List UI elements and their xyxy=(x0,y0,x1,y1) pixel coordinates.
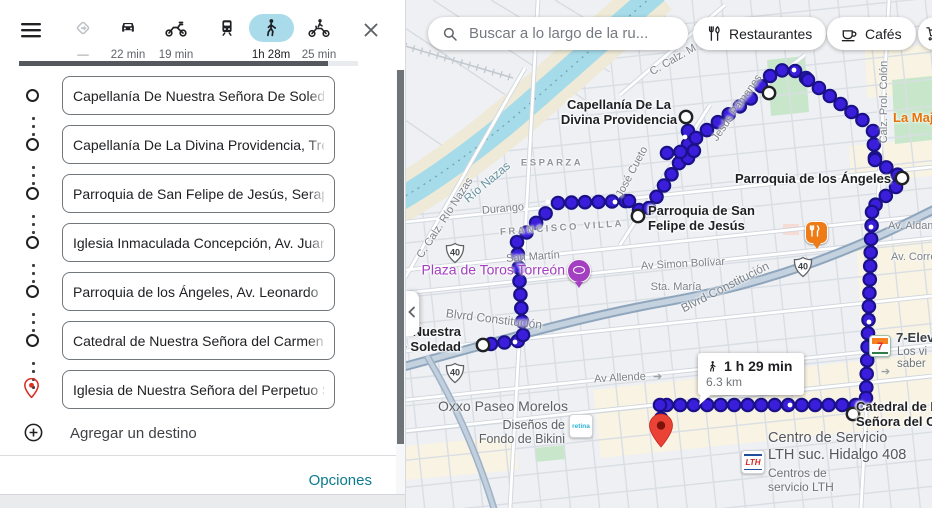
waypoint-input-5[interactable] xyxy=(63,273,334,310)
retina-store-icon[interactable]: retina xyxy=(569,414,593,438)
options-link[interactable]: Opciones xyxy=(303,471,378,490)
poi-label-parroquia-de-los-angeles[interactable]: Parroquia de los Ángeles xyxy=(735,171,891,186)
restaurants-chip[interactable]: Restaurantes xyxy=(693,17,826,50)
add-destination-label: Agregar un destino xyxy=(70,425,197,442)
mode-motorcycle-button[interactable]: 19 min xyxy=(153,14,199,61)
add-destination-row[interactable]: Agregar un destino xyxy=(0,422,405,448)
walking-icon xyxy=(706,359,719,374)
poi-label-centro-servicio-lth[interactable]: Centro de ServicioLTH suc. Hidalgo 408 C… xyxy=(768,430,906,494)
street-label-av-aldama: Av. Aldama xyxy=(888,220,932,232)
transit-icon xyxy=(216,17,238,39)
waypoint-input-6[interactable] xyxy=(63,322,334,359)
waypoint-input-1[interactable] xyxy=(63,77,334,114)
bicycle-icon xyxy=(307,17,331,39)
street-label-calz-prol-colon: Calz. Prol. Colón xyxy=(878,61,890,144)
waypoint-stop-marker xyxy=(26,334,39,347)
search-icon xyxy=(441,25,459,43)
poi-label-plaza-de-toros[interactable]: Plaza de Toros Torreón xyxy=(422,263,565,278)
waypoint-row xyxy=(0,125,405,174)
plaza-de-toros-icon[interactable] xyxy=(567,259,591,283)
menu-button[interactable] xyxy=(16,17,46,43)
cafes-chip-label: Cafés xyxy=(865,26,902,42)
directions-panel: — 22 min 19 min xyxy=(0,0,406,508)
waypoint-row xyxy=(0,321,405,370)
mode-cycling-button[interactable]: 25 min xyxy=(296,14,342,61)
route-duration: 1 h 29 min xyxy=(724,358,792,374)
waypoint-circle-san-felipe[interactable] xyxy=(632,210,644,222)
waypoint-circle-soledad[interactable] xyxy=(477,339,489,351)
mode-walking-button[interactable]: 1h 28m xyxy=(248,14,294,61)
mode-transit-button[interactable] xyxy=(204,14,250,49)
motorcycle-time: 19 min xyxy=(153,49,199,61)
mode-best-route-button[interactable]: — xyxy=(60,14,106,61)
waypoint-stop-marker xyxy=(26,138,39,151)
restaurant-pin-icon[interactable] xyxy=(805,221,828,244)
waypoint-row xyxy=(0,76,405,125)
poi-label-7-eleven-desc2: saber xyxy=(897,358,926,370)
motorcycle-icon xyxy=(164,17,188,39)
panel-bottom-strip xyxy=(0,494,405,508)
restaurants-icon xyxy=(707,26,722,42)
chevron-left-icon xyxy=(407,306,417,318)
best-route-time: — xyxy=(60,49,106,61)
car-icon xyxy=(117,17,139,39)
route-distance: 6.3 km xyxy=(706,375,792,389)
mode-driving-button[interactable]: 22 min xyxy=(105,14,151,61)
walking-icon xyxy=(260,17,282,39)
route-duration-bubble[interactable]: 1 h 29 min 6.3 km xyxy=(698,353,804,395)
poi-label-parroquia-san-felipe[interactable]: Parroquia de SanFelipe de Jesús xyxy=(648,203,755,233)
waypoint-input-4[interactable] xyxy=(63,224,334,261)
poi-label-oxxo-paseo-morelos[interactable]: Oxxo Paseo Morelos xyxy=(438,398,568,414)
collapse-panel-button[interactable] xyxy=(405,291,419,336)
seven-eleven-icon[interactable]: 7 xyxy=(869,335,891,357)
search-along-route-bar[interactable] xyxy=(428,17,688,50)
waypoint-input-7[interactable] xyxy=(63,371,334,408)
svg-text:40: 40 xyxy=(798,262,808,272)
groceries-icon xyxy=(926,26,932,41)
poi-label-7-eleven-desc1: Los vi xyxy=(897,346,927,358)
close-icon xyxy=(360,19,382,41)
lth-store-icon[interactable]: LTH xyxy=(741,450,765,474)
allende-direction-arrow: ➔ xyxy=(653,370,662,383)
waypoint-stop-marker xyxy=(26,187,39,200)
svg-text:40: 40 xyxy=(450,248,460,258)
panel-scrollbar[interactable] xyxy=(396,70,405,494)
waypoint-origin-marker xyxy=(26,89,39,102)
google-maps-directions-app: — 22 min 19 min xyxy=(0,0,932,508)
cafes-chip[interactable]: Cafés xyxy=(827,17,916,50)
waypoint-circle-divina-providencia[interactable] xyxy=(680,111,692,123)
add-circle-icon xyxy=(23,422,44,448)
waypoint-row xyxy=(0,174,405,223)
bubble-tail xyxy=(699,392,712,406)
map-canvas[interactable]: 40 40 40 xyxy=(405,0,932,508)
waypoint-input-3[interactable] xyxy=(63,175,334,212)
best-route-icon xyxy=(72,17,94,39)
restaurants-chip-label: Restaurantes xyxy=(729,26,812,42)
mode-bar-scrollbar-thumb[interactable] xyxy=(19,61,328,66)
area-label-esparza: ESPARZA xyxy=(521,158,583,169)
street-label-av-corregidora: Av. Corregidora xyxy=(891,251,932,263)
walking-time: 1h 28m xyxy=(248,49,294,61)
panel-scrollbar-thumb[interactable] xyxy=(397,70,404,444)
poi-label-catedral-del-carmen[interactable]: Catedral de NuestraSeñora del Carmen xyxy=(856,399,932,429)
poi-label-la-majada[interactable]: La Majada xyxy=(893,110,932,125)
svg-text:40: 40 xyxy=(450,368,460,378)
cafes-icon xyxy=(841,26,858,42)
close-directions-button[interactable] xyxy=(354,15,386,47)
mode-bar-scrollbar[interactable] xyxy=(19,61,358,66)
poi-label-fondo-de-bikini[interactable]: Diseños deFondo de Bikini xyxy=(479,418,565,446)
waypoint-list xyxy=(0,76,405,419)
waypoint-row xyxy=(0,370,405,419)
waypoint-stop-marker xyxy=(26,285,39,298)
seven-eleven-arrow: ➔ xyxy=(881,365,890,378)
poi-label-7-eleven[interactable]: 7-Eleven xyxy=(896,330,932,345)
waypoint-circle-angeles[interactable] xyxy=(896,172,908,184)
waypoint-input-2[interactable] xyxy=(63,126,334,163)
driving-time: 22 min xyxy=(105,49,151,61)
search-along-route-input[interactable] xyxy=(467,24,688,43)
poi-label-capellania-divina-providencia[interactable]: Capellanía De LaDivina Providencia xyxy=(561,97,677,127)
waypoint-row xyxy=(0,272,405,321)
waypoint-stop-marker xyxy=(26,236,39,249)
waypoint-circle-inmaculada[interactable] xyxy=(763,87,775,99)
cycling-time: 25 min xyxy=(296,49,342,61)
street-label-sta-maria: Sta. María xyxy=(651,281,702,293)
hamburger-icon xyxy=(19,19,43,41)
waypoint-row xyxy=(0,223,405,272)
travel-mode-toolbar: — 22 min 19 min xyxy=(0,0,405,70)
destination-pin-icon xyxy=(24,378,39,403)
